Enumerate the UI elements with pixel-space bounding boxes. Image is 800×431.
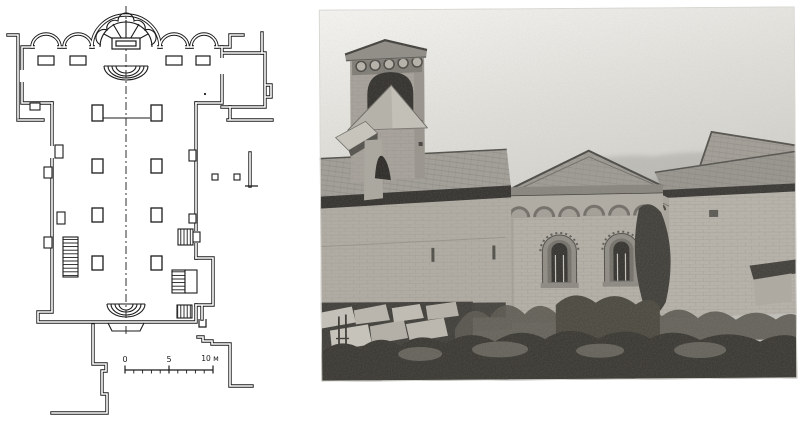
- scale-label-five: 5: [166, 355, 171, 364]
- plan-nave-piers: [92, 105, 162, 270]
- church-plan-drawing: 0 5 10 м: [0, 0, 310, 431]
- figure-church-photo: [319, 6, 798, 381]
- photo-grain-overlay: [319, 6, 798, 381]
- scale-label-ten: 10 м: [201, 354, 219, 363]
- scale-label-zero: 0: [122, 355, 127, 364]
- plan-staircases: [63, 229, 200, 318]
- plan-pilasters: [30, 103, 240, 248]
- book-page: 0 5 10 м: [0, 0, 800, 431]
- plan-choir-steps: [104, 66, 148, 80]
- plan-scale-labels: 0 5 10 м: [122, 354, 218, 364]
- figure-church-plan: 0 5 10 м: [0, 0, 310, 431]
- plan-walls: [8, 15, 272, 413]
- plan-walls-core: [8, 15, 272, 413]
- plan-scale-bar: [125, 366, 213, 374]
- plan-column-dot: [204, 93, 206, 95]
- church-photo: [319, 6, 798, 381]
